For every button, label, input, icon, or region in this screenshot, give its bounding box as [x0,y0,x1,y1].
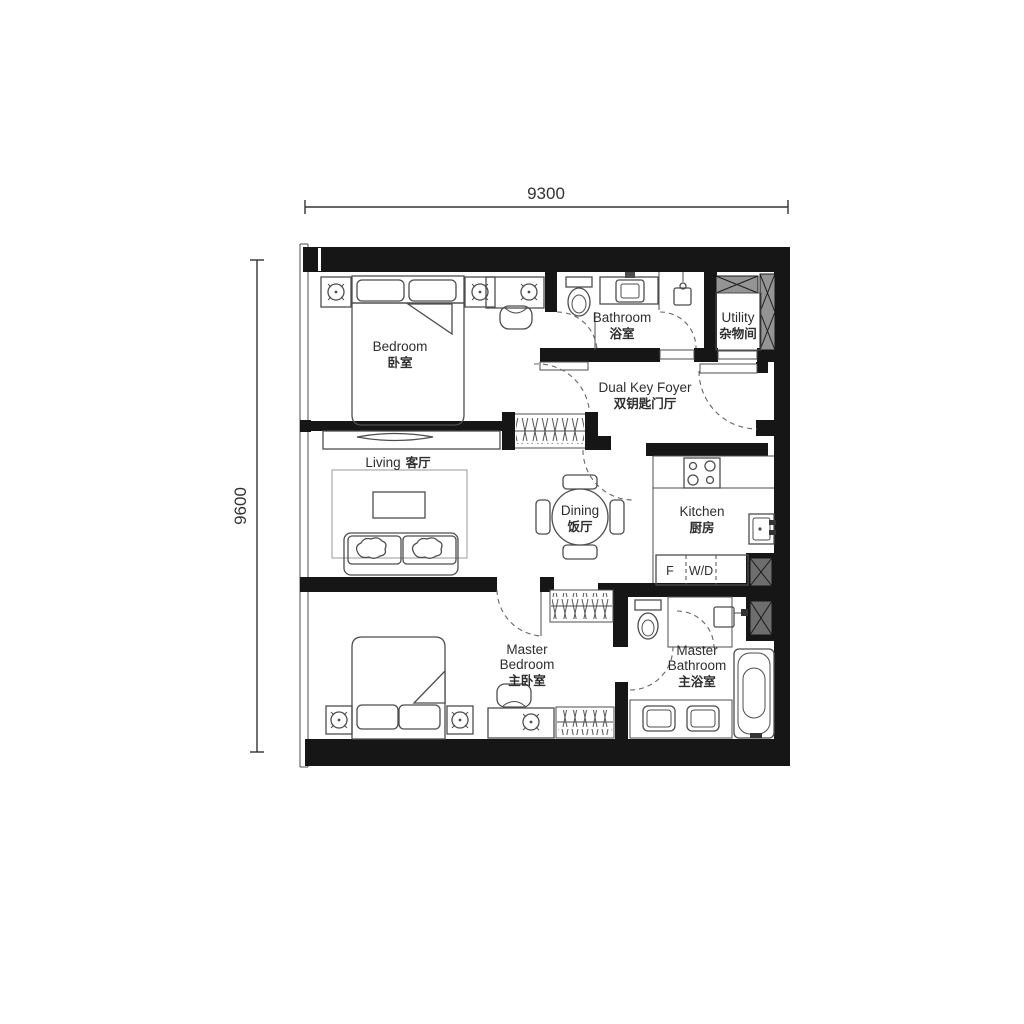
wardrobe [550,590,613,622]
bathtub [734,649,774,738]
pillow [357,705,398,729]
burner [705,461,715,471]
window-wall [300,244,308,767]
coffee-table [373,492,425,518]
door-arc-shower-room [660,312,696,348]
wash-basin [714,607,734,627]
dining-chair [536,500,550,534]
pillow [409,280,456,301]
sofa-pillow [413,538,442,558]
table-lamp-icon [521,284,537,300]
master-bedroom-label-zh: 主卧室 [508,673,546,688]
tv [357,434,433,441]
bedroom-label-zh: 卧室 [387,355,413,370]
utility-label-zh: 杂物间 [719,326,757,341]
blanket-fold [414,671,445,703]
door-arc-bedroom-bath [557,312,597,352]
shaft-right [760,274,775,350]
master-bathroom-label-2: Bathroom [668,658,727,673]
floor-plan-page: 9300 9600 [0,0,1024,1024]
double-vanity [630,700,732,738]
dining-label: Dining [561,503,599,518]
dimension-width-label: 9300 [527,184,565,203]
faucet-icon [741,609,748,616]
master-bathroom-label-zh: 主浴室 [678,674,716,689]
pillow [399,705,440,729]
desk [488,708,554,738]
shaft-utility-top [716,276,758,293]
blanket-fold [408,304,452,334]
toilet-tank [635,600,661,610]
foyer-label: Dual Key Foyer [598,380,692,395]
washer-dryer-label: W/D [689,564,713,578]
door-arc-master-bathroom [630,647,673,690]
toilet [568,288,590,316]
living-label: Living客厅 [365,455,431,470]
wardrobe [556,707,614,738]
door-arc-entry [699,371,757,429]
toilet-tank [566,277,592,287]
shaft-bath [750,601,772,635]
burner [707,477,714,484]
table-lamp-icon [328,284,344,300]
living-furniture [323,431,500,575]
kitchen-label: Kitchen [679,504,724,519]
dimension-height-label: 9600 [231,487,250,525]
kitchen-label-zh: 厨房 [689,520,714,535]
pillow [357,280,404,301]
shower-enclosure [668,597,732,647]
master-bedroom-furniture [326,590,614,739]
bathroom-label-zh: 浴室 [609,326,635,341]
bedroom-furniture [321,276,544,425]
burner [690,463,697,470]
vanity-counter [600,277,658,304]
tub-faucet-icon [750,733,762,738]
door-arc-master-bedroom [497,590,542,636]
utility-label: Utility [722,310,755,325]
table-lamp-icon [452,712,468,728]
master-bedroom-label-1: Master [506,642,548,657]
vanity-sink [616,280,644,302]
dining-chair [563,475,597,489]
sofa-pillow [357,538,386,558]
dimension-left: 9600 [231,260,264,752]
floor-plan: 9300 9600 [0,0,1024,1024]
rug [332,470,467,558]
dimension-top: 9300 [305,184,788,214]
master-bathroom-label-1: Master [676,643,718,658]
table-lamp-icon [331,712,347,728]
burner [688,475,698,485]
foyer-label-zh: 双钥匙门厅 [613,396,677,411]
fridge-label: F [666,564,674,578]
desk-chair [500,306,532,329]
shaft-kitchen [750,558,772,586]
faucet-icon [769,520,776,525]
dining-chair [610,500,624,534]
faucet-icon [625,272,635,278]
bedroom-label: Bedroom [373,339,428,354]
master-bedroom-label-2: Bedroom [500,657,555,672]
faucet-icon [769,530,776,535]
dining-label-zh: 饭厅 [566,519,593,534]
toilet [638,613,658,639]
table-lamp-icon [523,714,539,730]
floor-drain [674,288,691,305]
bathroom-label: Bathroom [593,310,652,325]
foyer-wardrobe [502,412,611,450]
dining-chair [563,545,597,559]
